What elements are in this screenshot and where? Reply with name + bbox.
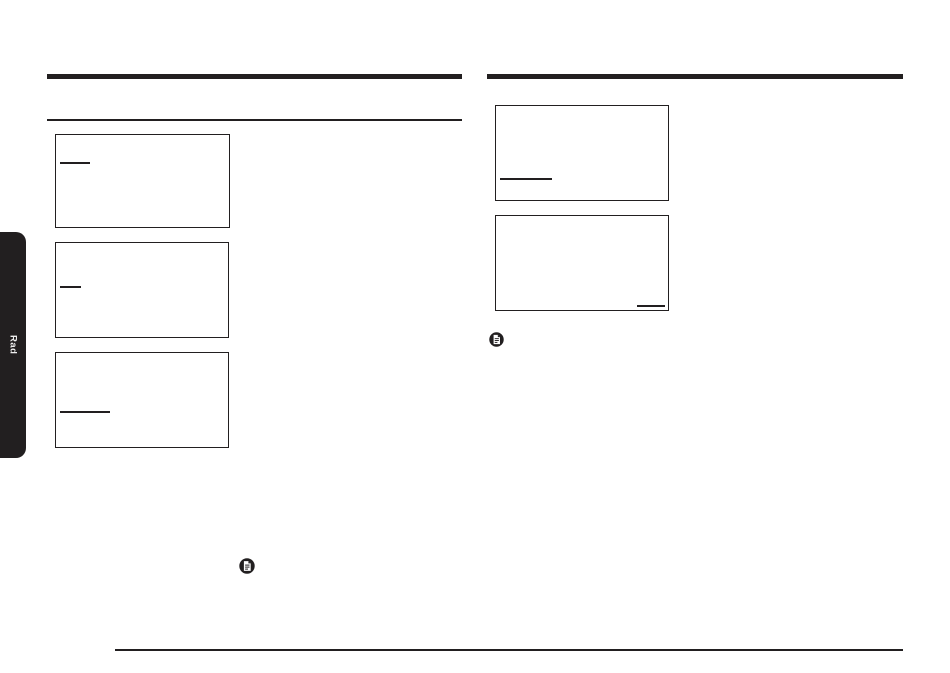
- underline-mark: [60, 286, 81, 288]
- underline-mark: [637, 305, 665, 307]
- underline-mark: [500, 178, 552, 180]
- footer-rule: [115, 649, 903, 651]
- display-box: [55, 352, 229, 448]
- underline-mark: [60, 162, 90, 164]
- right-column-header-rule-thick: [487, 74, 903, 79]
- side-tab-rad: Rad: [0, 232, 26, 458]
- note-icon: [239, 558, 255, 574]
- side-tab-label: Rad: [8, 335, 19, 354]
- display-box: [495, 215, 669, 311]
- left-column-header-rule-thick: [47, 74, 462, 79]
- display-box: [55, 242, 229, 338]
- manual-page: Rad: [0, 0, 950, 673]
- display-box: [55, 134, 230, 228]
- display-box: [495, 105, 669, 201]
- left-column-header-rule-thin: [47, 119, 462, 121]
- note-icon: [489, 332, 504, 347]
- underline-mark: [60, 411, 110, 413]
